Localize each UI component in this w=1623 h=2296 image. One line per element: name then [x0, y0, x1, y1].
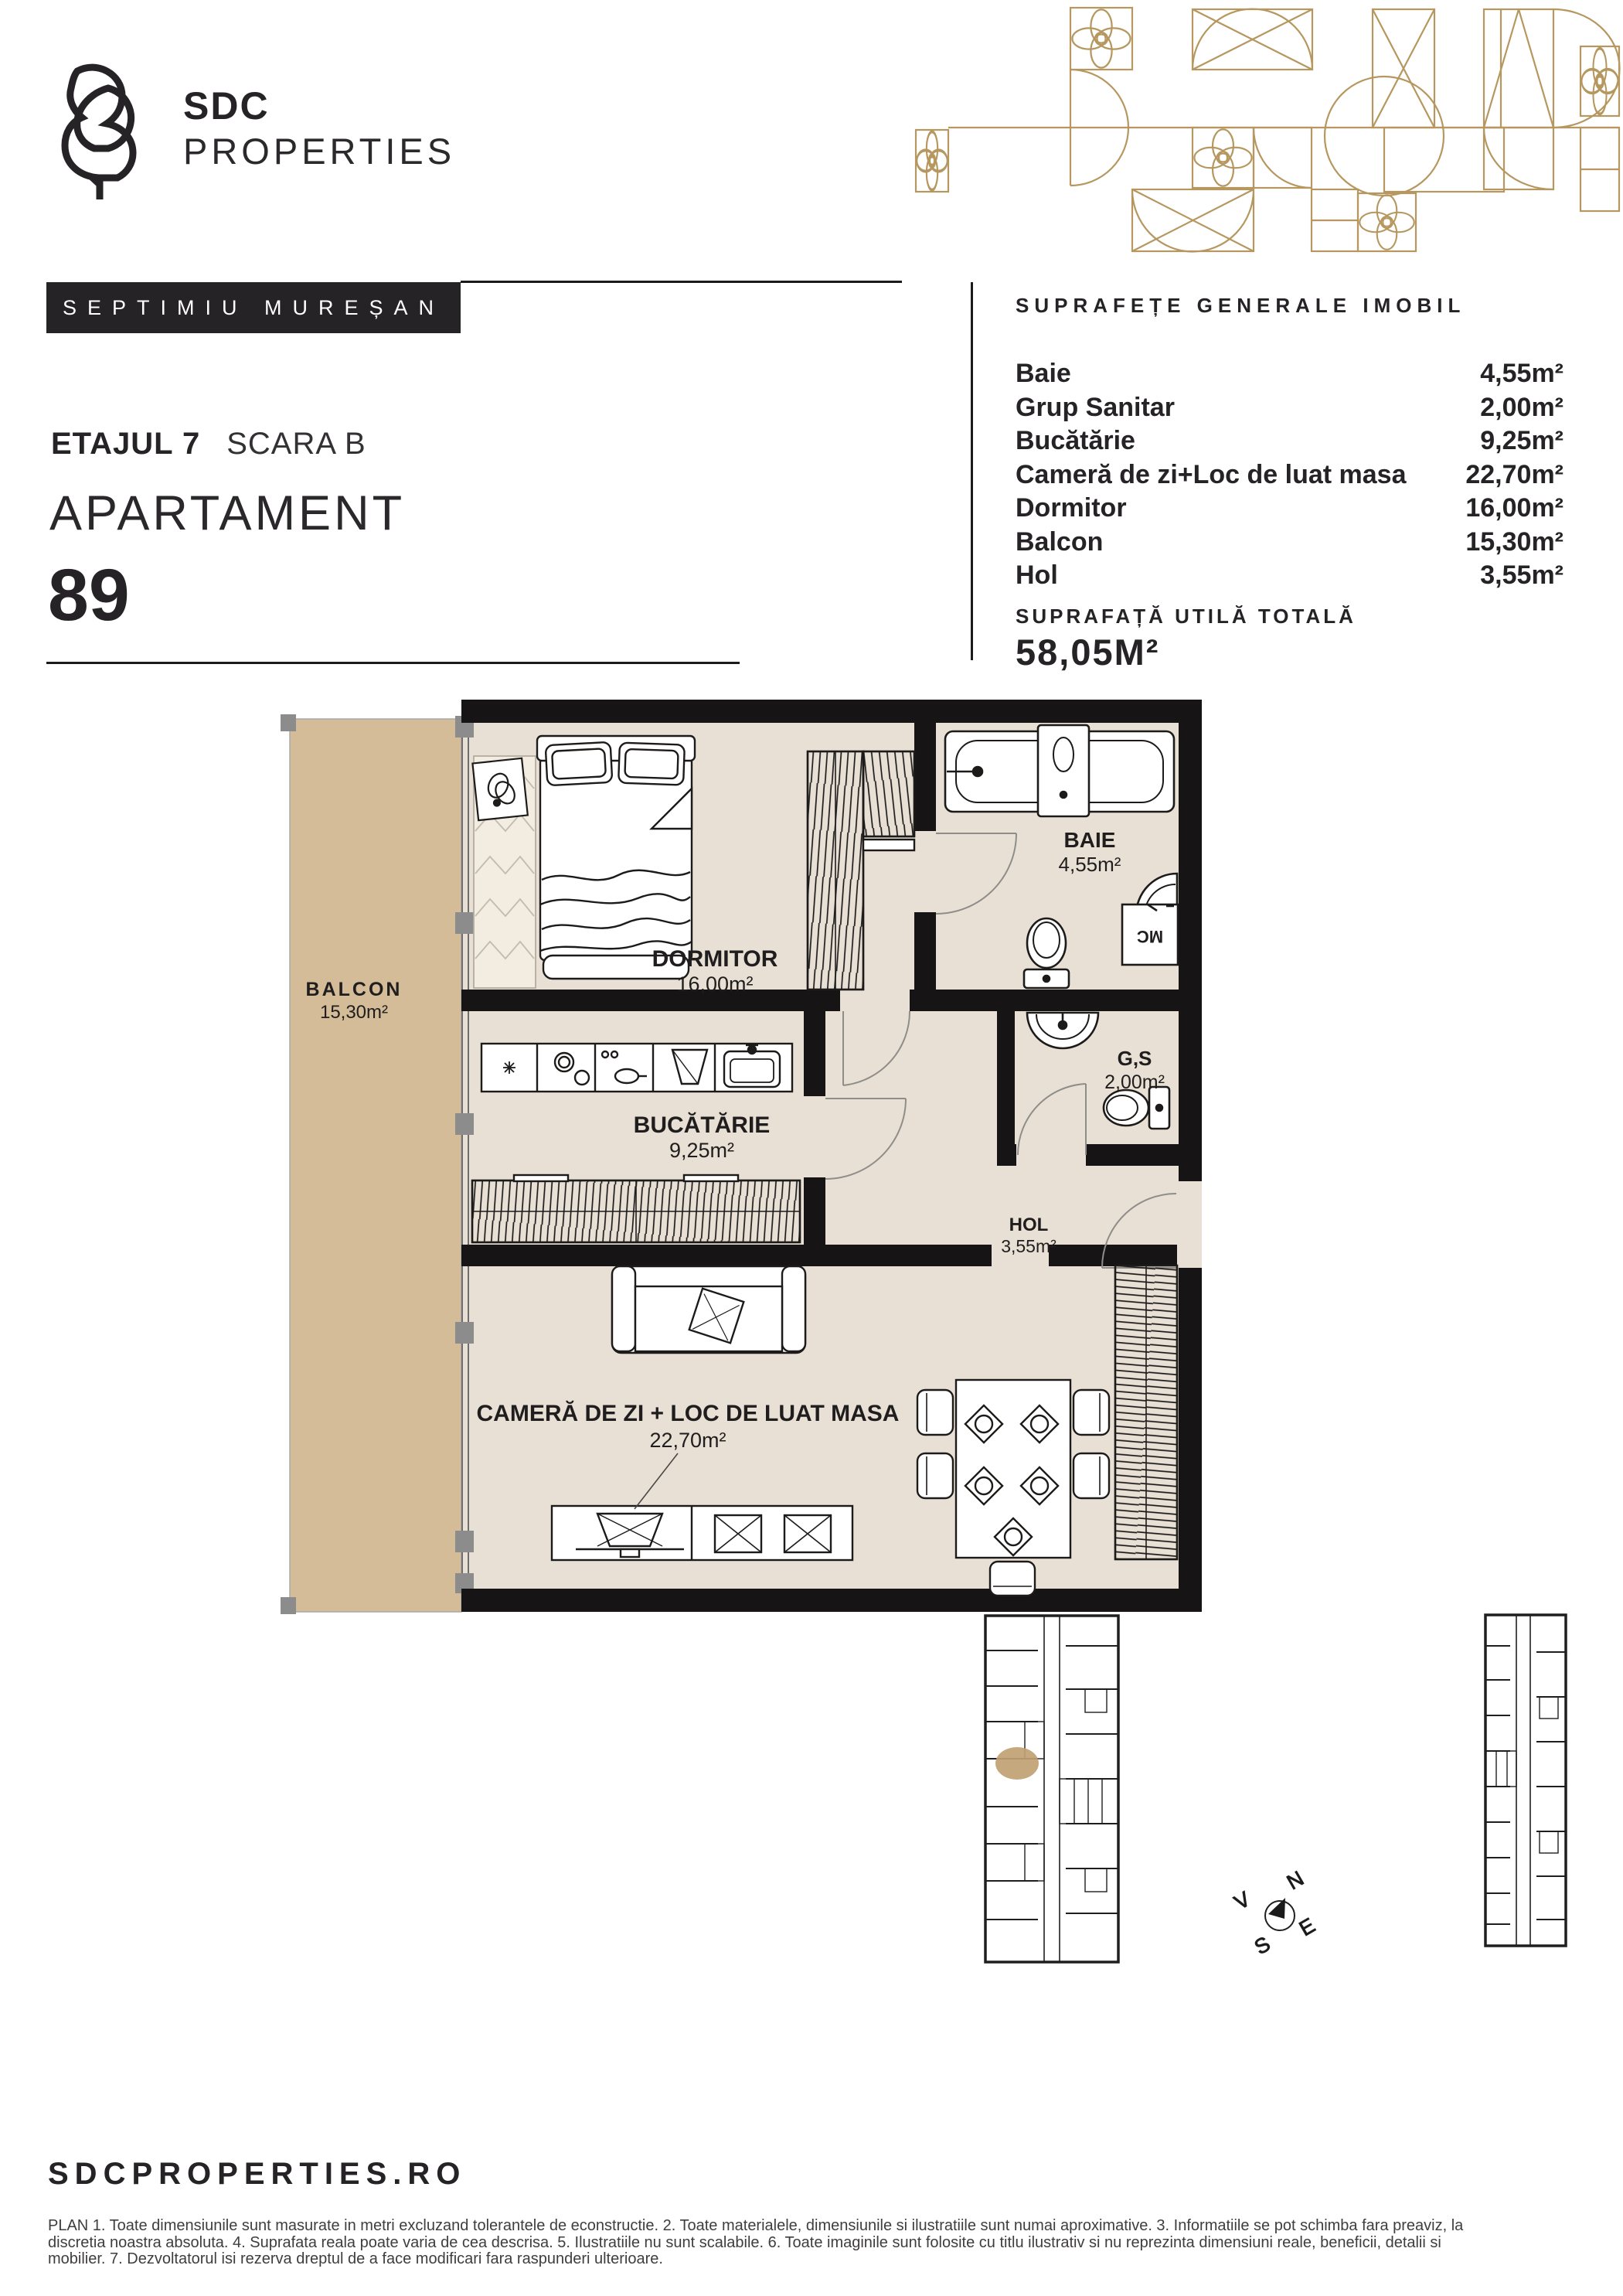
area-row: Grup Sanitar 2,00m² — [1016, 391, 1563, 425]
brochure-page: SDC PROPERTIES — [0, 0, 1623, 2296]
room-area-living: 22,70m² — [649, 1429, 726, 1452]
compass-e: E — [1295, 1913, 1319, 1940]
compass-v: V — [1230, 1887, 1254, 1914]
disclaimer-line: PLAN 1. Toate dimensiunile sunt masurate… — [48, 2218, 1463, 2235]
apartment-label: APARTAMENT — [49, 485, 405, 541]
area-row-label: Bucătărie — [1016, 424, 1135, 458]
area-row-label: Baie — [1016, 357, 1071, 391]
room-area-bucatarie: 9,25m² — [669, 1139, 734, 1162]
area-row-value: 2,00m² — [1480, 391, 1563, 425]
total-value: 58,05M² — [1016, 631, 1159, 673]
building-overview: N V E S — [0, 1612, 1623, 2014]
room-area-gs: 2,00m² — [1104, 1071, 1165, 1093]
bathtub — [945, 725, 1174, 816]
area-row: Cameră de zi+Loc de luat masa 22,70m² — [1016, 458, 1563, 492]
brand-name: SDC — [183, 83, 270, 128]
room-area-hol: 3,55m² — [1001, 1236, 1056, 1256]
area-row: Dormitor 16,00m² — [1016, 492, 1563, 526]
room-area-balcon: 15,30m² — [320, 1002, 388, 1023]
areas-list: Baie 4,55m² Grup Sanitar 2,00m² Bucătări… — [1016, 357, 1563, 593]
room-label-living: CAMERĂ DE ZI + LOC DE LUAT MASA — [477, 1400, 900, 1426]
logo-tree-icon — [48, 62, 156, 201]
area-row-label: Grup Sanitar — [1016, 391, 1175, 425]
compass-s: S — [1250, 1932, 1274, 1959]
disclaimer-line: mobilier. 7. Dezvoltatorul isi rezerva d… — [48, 2251, 1463, 2268]
area-row: Baie 4,55m² — [1016, 357, 1563, 391]
overview-plan-left — [985, 1616, 1118, 1962]
sofa — [612, 1266, 805, 1353]
area-row-value: 22,70m² — [1465, 458, 1563, 492]
area-row-label: Balcon — [1016, 526, 1103, 560]
area-row-value: 15,30m² — [1465, 526, 1563, 560]
balcony-floor — [290, 719, 461, 1612]
area-row: Bucătărie 9,25m² — [1016, 424, 1563, 458]
area-row-value: 9,25m² — [1480, 424, 1563, 458]
room-area-baie: 4,55m² — [1059, 853, 1121, 876]
floor-label: ETAJUL 7 — [51, 427, 200, 461]
area-row-label: Hol — [1016, 559, 1058, 593]
room-label-bucatarie: BUCĂTĂRIE — [634, 1112, 771, 1138]
disclaimer: PLAN 1. Toate dimensiunile sunt masurate… — [48, 2218, 1463, 2268]
kitchen-counter — [481, 1044, 792, 1092]
brand-name-secondary: PROPERTIES — [183, 130, 455, 172]
developer-name: SEPTIMIU MUREȘAN — [63, 296, 444, 320]
vertical-divider — [971, 282, 973, 660]
floor-stair-line: ETAJUL 7SCARA B — [51, 427, 366, 462]
gs-toilet — [1104, 1087, 1169, 1129]
room-label-baie: BAIE — [1064, 828, 1116, 852]
room-label-balcon: BALCON — [306, 979, 403, 1000]
hall-wardrobe — [1115, 1266, 1177, 1559]
tv-stand — [552, 1506, 852, 1560]
nightstand-plant — [472, 758, 527, 820]
areas-heading: SUPRAFEȚE GENERALE IMOBIL — [1016, 294, 1465, 318]
apartment-number: 89 — [48, 554, 130, 638]
area-row-value: 3,55m² — [1480, 559, 1563, 593]
room-label-dormitor: DORMITOR — [652, 946, 778, 972]
developer-badge: SEPTIMIU MUREȘAN — [46, 282, 461, 333]
room-label-hol: HOL — [1009, 1214, 1049, 1235]
compass-n: N — [1283, 1866, 1308, 1894]
washing-machine-label: MC — [1137, 927, 1163, 946]
area-row-label: Cameră de zi+Loc de luat masa — [1016, 458, 1406, 492]
kitchen-sideboard — [472, 1175, 800, 1242]
overview-plan-right — [1485, 1615, 1566, 1946]
floor-plan: DORMITOR 16,00m² MC BAIE 4,55m² — [174, 680, 1271, 1616]
compass-icon: N V E S — [1230, 1866, 1319, 1959]
room-label-gs: G,S — [1118, 1047, 1152, 1070]
area-row: Balcon 15,30m² — [1016, 526, 1563, 560]
room-area-dormitor: 16,00m² — [676, 973, 753, 996]
total-heading: SUPRAFAȚĂ UTILĂ TOTALĂ — [1016, 605, 1356, 629]
gold-geometric-pattern — [912, 0, 1623, 263]
area-row: Hol 3,55m² — [1016, 559, 1563, 593]
disclaimer-line: discretia noastra absoluta. 4. Suprafata… — [48, 2235, 1463, 2252]
area-row-label: Dormitor — [1016, 492, 1127, 526]
area-row-value: 4,55m² — [1480, 357, 1563, 391]
header-rule — [461, 281, 902, 283]
website-url: SDCPROPERTIES.RO — [48, 2157, 466, 2192]
horizontal-rule — [46, 662, 740, 664]
bathroom-toilet — [1024, 918, 1069, 988]
stair-label: SCARA B — [226, 427, 366, 461]
area-row-value: 16,00m² — [1465, 492, 1563, 526]
unit-location-marker — [995, 1747, 1039, 1780]
bed — [537, 736, 695, 979]
